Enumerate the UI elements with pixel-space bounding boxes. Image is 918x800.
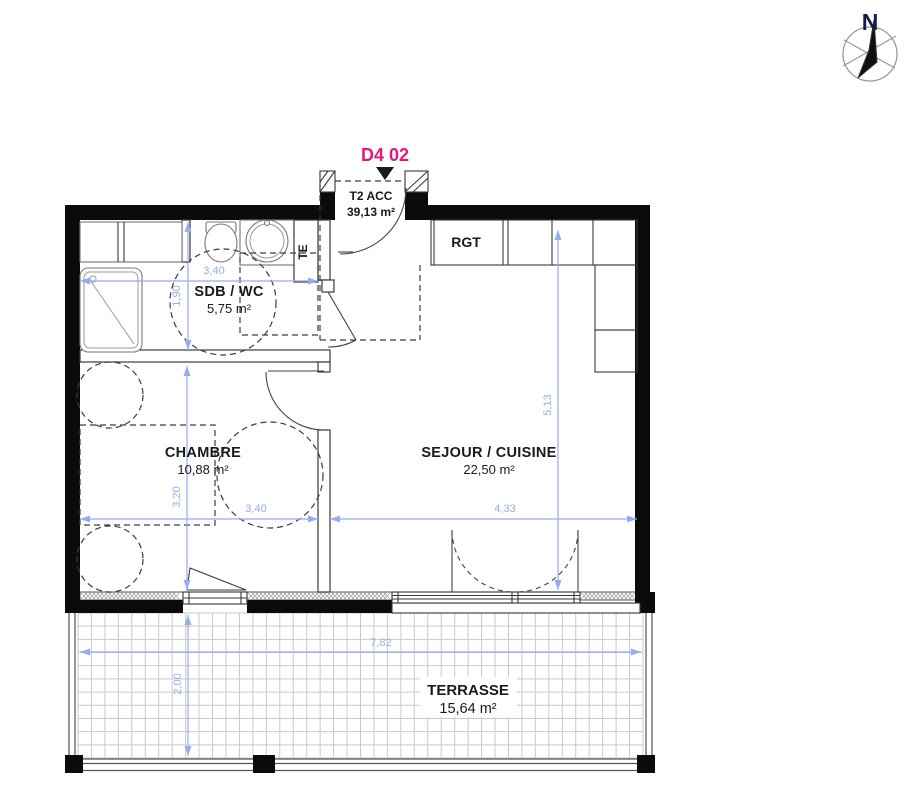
french-door-swing bbox=[516, 530, 578, 592]
entry-area-label: 39,13 m² bbox=[347, 205, 395, 219]
chambre-name: CHAMBRE bbox=[165, 445, 241, 461]
unit-marker-triangle-icon bbox=[376, 167, 394, 180]
bay-window bbox=[392, 530, 580, 603]
floor-plan-canvas: 3,401,903,403,204,335,137,822,00 T2 ACC … bbox=[0, 0, 918, 800]
terrasse-area: 15,64 m² bbox=[439, 701, 496, 717]
compass-icon: N bbox=[843, 9, 897, 81]
unit-marker: D4 02 bbox=[361, 145, 409, 180]
chambre-door-swing bbox=[266, 372, 324, 430]
french-door-swing bbox=[452, 530, 514, 592]
sdb-area: 5,75 m² bbox=[207, 301, 252, 316]
toilet bbox=[205, 222, 237, 262]
compass-north-label: N bbox=[862, 9, 879, 35]
te-duct-label: TE bbox=[296, 244, 310, 259]
sdb-door-swing bbox=[328, 340, 356, 347]
unit-code-label: D4 02 bbox=[361, 145, 409, 165]
terrasse-name: TERRASSE bbox=[427, 682, 509, 699]
terrace-threshold bbox=[392, 603, 640, 613]
sejour-area: 22,50 m² bbox=[463, 462, 515, 477]
chambre-window bbox=[183, 568, 247, 604]
dimension-label-terrasse_width: 7,82 bbox=[370, 637, 391, 649]
turning-circle-chambre-2 bbox=[77, 526, 143, 592]
dimension-label-sdb_height: 1,90 bbox=[171, 285, 183, 306]
cupboard bbox=[80, 222, 182, 262]
dimension-label-terrasse_height: 2,00 bbox=[172, 673, 184, 694]
rgt-closet-label: RGT bbox=[451, 234, 481, 250]
dimension-label-chambre_height: 3,20 bbox=[171, 486, 183, 507]
chambre-area: 10,88 m² bbox=[177, 462, 229, 477]
washbasin bbox=[240, 220, 294, 265]
dimension-label-sdb_width: 3,40 bbox=[203, 265, 224, 277]
terrace-tile-grid bbox=[78, 613, 643, 758]
sdb-name: SDB / WC bbox=[194, 284, 263, 300]
entry-type-label: T2 ACC bbox=[350, 189, 393, 203]
turning-circle-chambre-1 bbox=[77, 362, 143, 428]
dimension-label-sejour_height: 5,13 bbox=[542, 394, 554, 415]
sdb-door-leaf bbox=[328, 292, 356, 340]
dimension-label-chambre_width: 3,40 bbox=[245, 503, 266, 515]
sejour-name: SEJOUR / CUISINE bbox=[421, 445, 556, 461]
turning-circle-chambre-3 bbox=[217, 422, 323, 528]
dimension-label-sejour_width: 4,33 bbox=[494, 503, 515, 515]
floor-plan-drawing: 3,401,903,403,204,335,137,822,00 T2 ACC … bbox=[0, 0, 918, 800]
